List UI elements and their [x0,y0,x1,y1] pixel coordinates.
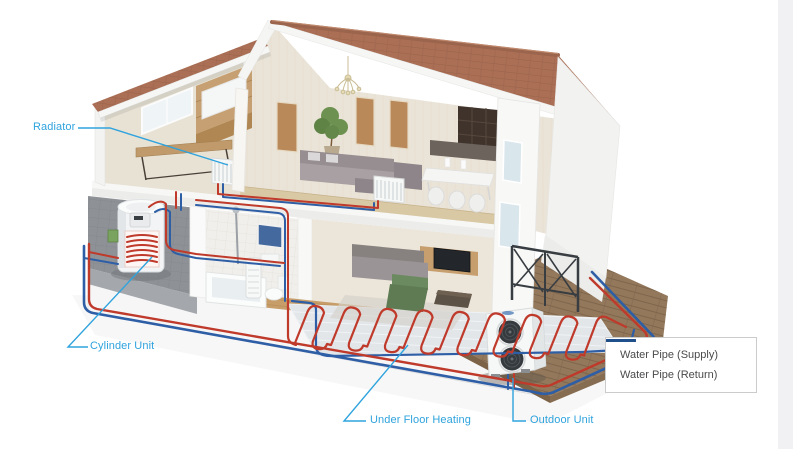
toilet-tank [278,276,288,290]
brand-logo [502,311,514,315]
legend-item-return: Water Pipe (Return) [620,369,756,381]
legend-label-supply: Water Pipe (Supply) [620,349,718,361]
door [277,102,297,152]
glass-panel [503,140,522,183]
cylinder-unit-label: Cylinder Unit [90,340,154,353]
under-floor-heating-label: Under Floor Heating [370,414,471,427]
legend-item-supply: Water Pipe (Supply) [620,349,756,361]
chandelier [335,56,361,95]
corner-pillar [492,98,540,330]
return-pipe-swatch [606,338,636,343]
toilet [265,288,283,300]
door [356,97,374,146]
legend: Water Pipe (Supply) Water Pipe (Return) [605,337,757,393]
outdoor-unit-label: Outdoor Unit [530,414,594,427]
legend-label-return: Water Pipe (Return) [620,369,717,381]
radiator-graphic-living [374,176,404,203]
glass-panel [499,202,520,249]
door [390,100,408,149]
heat-pump-system-diagram: Radiator Cylinder Unit Under Floor Heati… [0,0,793,449]
radiator-label: Radiator [33,121,75,134]
mirror [258,224,282,248]
